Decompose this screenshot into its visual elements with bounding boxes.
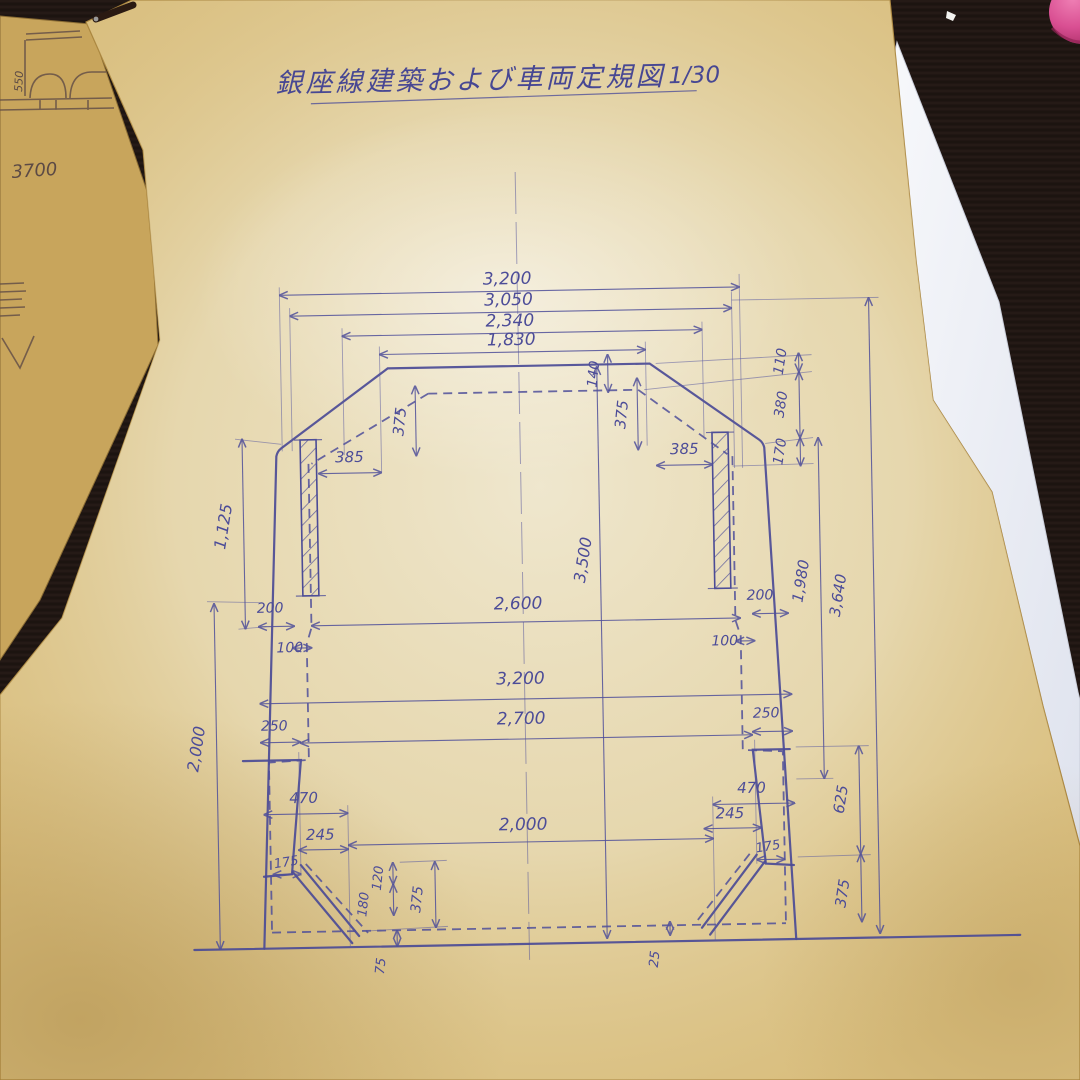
- dim-3050: 3,050: [484, 290, 533, 311]
- dim-385-right: 385: [670, 440, 699, 459]
- dim-375-top-left: 375: [389, 406, 410, 436]
- dim-375-bottom-left: 375: [408, 885, 427, 913]
- dim-180: 180: [355, 891, 372, 917]
- photo-of-blueprint: 3700 550 銀座線建築および車両定規図 1/30: [0, 0, 1080, 1080]
- under-sheet-dim-3700: 3700: [11, 159, 58, 183]
- dim-245-right: 245: [715, 804, 744, 823]
- dim-2600: 2,600: [494, 594, 543, 615]
- dim-3200-top: 3,200: [483, 269, 532, 290]
- title-scale: 1/30: [668, 62, 720, 89]
- dim-250-left: 250: [261, 718, 288, 734]
- dim-385-left: 385: [335, 448, 364, 467]
- dim-375-top-right: 375: [611, 399, 632, 429]
- dim-2000-bottom: 2,000: [499, 815, 548, 836]
- dim-2340: 2,340: [485, 311, 534, 332]
- dim-200-left: 200: [257, 600, 284, 616]
- dim-200-right: 200: [746, 587, 773, 603]
- under-sheet-dim-550: 550: [12, 71, 26, 93]
- dim-1830: 1,830: [487, 330, 536, 351]
- dim-100-left: 100: [276, 640, 303, 656]
- dim-75: 75: [373, 957, 390, 975]
- scene: 3700 550 銀座線建築および車両定規図 1/30: [0, 0, 1080, 1080]
- dim-470-left: 470: [289, 789, 318, 808]
- dim-250-right: 250: [753, 705, 780, 721]
- dim-2700: 2,700: [497, 709, 546, 730]
- dim-25: 25: [647, 950, 664, 968]
- dim-100-right: 100: [711, 633, 738, 649]
- dim-470-right: 470: [737, 779, 766, 798]
- dim-3200-mid: 3,200: [496, 669, 545, 690]
- dim-140: 140: [585, 360, 604, 388]
- dim-120: 120: [370, 865, 387, 891]
- dim-245-left: 245: [306, 825, 335, 844]
